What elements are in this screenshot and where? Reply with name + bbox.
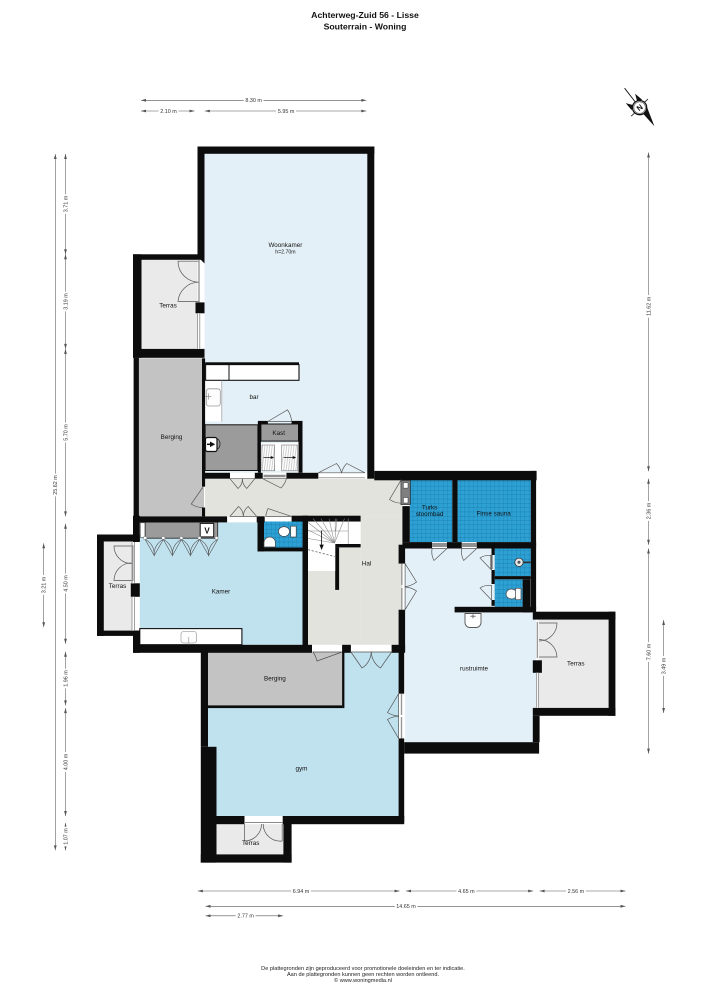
svg-text:7.60 m: 7.60 m	[646, 643, 652, 660]
svg-text:Hal: Hal	[362, 561, 371, 568]
svg-text:4.65 m: 4.65 m	[458, 889, 475, 895]
svg-text:Kast: Kast	[272, 430, 285, 437]
svg-text:stoombad: stoombad	[416, 511, 444, 518]
svg-text:5.70 m: 5.70 m	[63, 424, 69, 441]
svg-text:Finse sauna: Finse sauna	[476, 511, 511, 518]
svg-text:3.19 m: 3.19 m	[63, 293, 69, 310]
svg-text:25.62 m: 25.62 m	[53, 475, 59, 495]
svg-text:Souterrain - Woning: Souterrain - Woning	[324, 22, 407, 32]
svg-text:2.36 m: 2.36 m	[646, 502, 652, 519]
svg-text:2.56 m: 2.56 m	[568, 889, 585, 895]
svg-text:4.50 m: 4.50 m	[63, 575, 69, 592]
svg-text:6.94 m: 6.94 m	[293, 889, 310, 895]
svg-text:gym: gym	[295, 766, 307, 773]
svg-text:Berging: Berging	[161, 434, 183, 441]
svg-text:4.00 m: 4.00 m	[63, 753, 69, 770]
svg-text:3.71 m: 3.71 m	[63, 195, 69, 212]
svg-text:rustruimte: rustruimte	[460, 666, 488, 673]
svg-text:2.77 m: 2.77 m	[237, 914, 254, 920]
svg-text:5.95 m: 5.95 m	[278, 109, 295, 115]
svg-text:Terras: Terras	[159, 303, 177, 310]
svg-text:© www.woningmedia.nl: © www.woningmedia.nl	[334, 977, 392, 984]
svg-text:2.10 m: 2.10 m	[160, 109, 177, 115]
svg-text:11.62 m: 11.62 m	[646, 296, 652, 316]
svg-text:1.96 m: 1.96 m	[63, 670, 69, 687]
svg-text:3.49 m: 3.49 m	[662, 657, 668, 674]
svg-text:Achterweg-Zuid 56 - Lisse: Achterweg-Zuid 56 - Lisse	[311, 10, 419, 20]
svg-text:Kamer: Kamer	[212, 589, 231, 596]
svg-text:bar: bar	[249, 394, 258, 401]
svg-text:Berging: Berging	[264, 676, 286, 683]
svg-text:Terras: Terras	[567, 661, 585, 668]
svg-text:h=2.70m: h=2.70m	[275, 250, 295, 256]
svg-text:1.07 m: 1.07 m	[63, 828, 69, 845]
svg-text:3.21 m: 3.21 m	[42, 576, 48, 593]
svg-text:V: V	[204, 527, 210, 536]
svg-text:Terras: Terras	[109, 583, 127, 590]
svg-text:Terras: Terras	[242, 840, 260, 847]
svg-text:14.65 m: 14.65 m	[396, 904, 416, 910]
svg-text:8.30 m: 8.30 m	[245, 98, 262, 104]
svg-text:Woonkamer: Woonkamer	[268, 242, 302, 249]
